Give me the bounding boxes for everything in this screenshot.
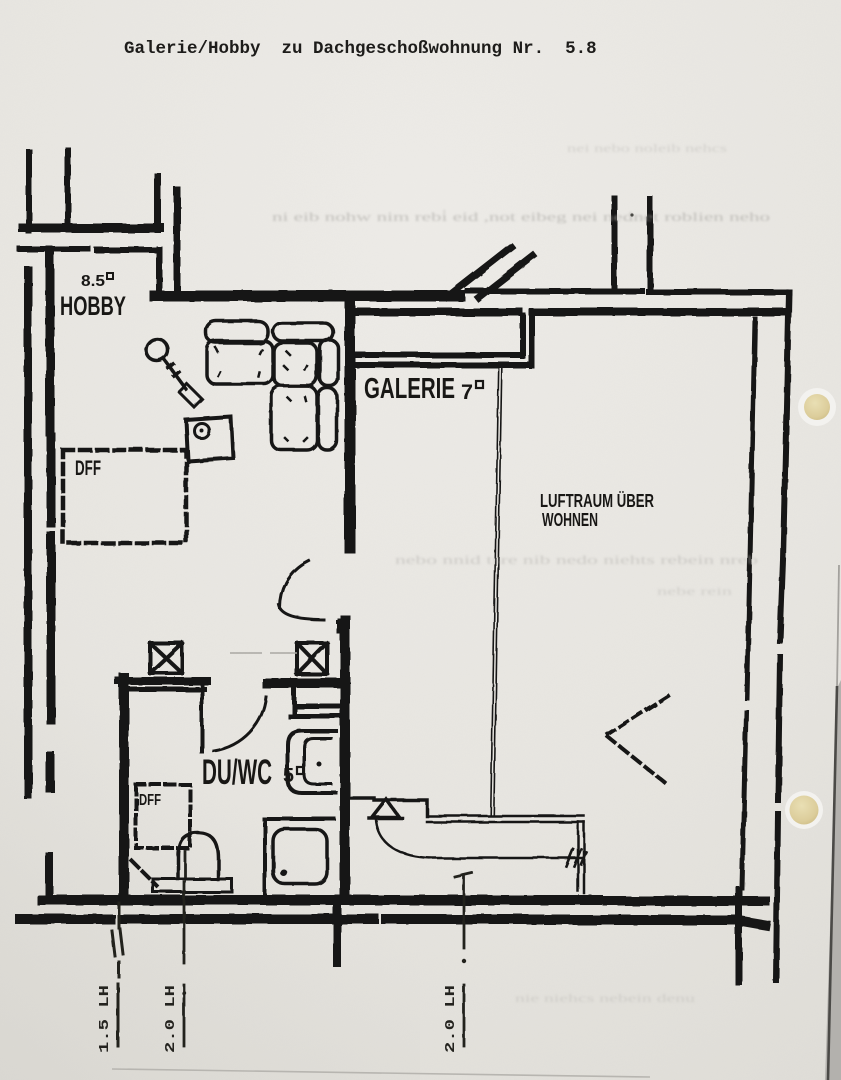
- svg-text:7: 7: [461, 381, 473, 404]
- svg-text:1.5 LH: 1.5 LH: [97, 985, 113, 1053]
- svg-text:nie niehcs nebein denu: nie niehcs nebein denu: [515, 991, 695, 1005]
- svg-text:2.0 LH: 2.0 LH: [163, 985, 179, 1053]
- svg-text:2.0 LH: 2.0 LH: [443, 985, 459, 1053]
- svg-text:GALERIE: GALERIE: [364, 373, 455, 405]
- svg-text:5: 5: [283, 765, 294, 787]
- svg-text:DFF: DFF: [75, 457, 101, 480]
- svg-text:8.5: 8.5: [81, 273, 105, 290]
- svg-text:nebo nnid tsre nib nedo niehts: nebo nnid tsre nib nedo niehts rebein nr…: [395, 552, 758, 567]
- svg-text:DU/WC: DU/WC: [202, 753, 272, 792]
- svg-text:LUFTRAUM ÜBER: LUFTRAUM ÜBER: [540, 491, 654, 511]
- svg-text:DFF: DFF: [139, 792, 161, 809]
- svg-text:HOBBY: HOBBY: [60, 291, 126, 321]
- svg-text:WOHNEN: WOHNEN: [542, 510, 598, 530]
- svg-text:nebe rein: nebe rein: [657, 584, 732, 598]
- svg-text:nei nebo noleib nehcs: nei nebo noleib nehcs: [567, 141, 727, 155]
- svg-text:ni eib nohw nim rebi̇ eid ,not: ni eib nohw nim rebi̇ eid ,not eibeg nei…: [272, 209, 770, 224]
- svg-text:Galerie/Hobby zu Dachgeschoßw: Galerie/Hobby zu Dachgeschoßwohnung Nr. …: [124, 39, 597, 59]
